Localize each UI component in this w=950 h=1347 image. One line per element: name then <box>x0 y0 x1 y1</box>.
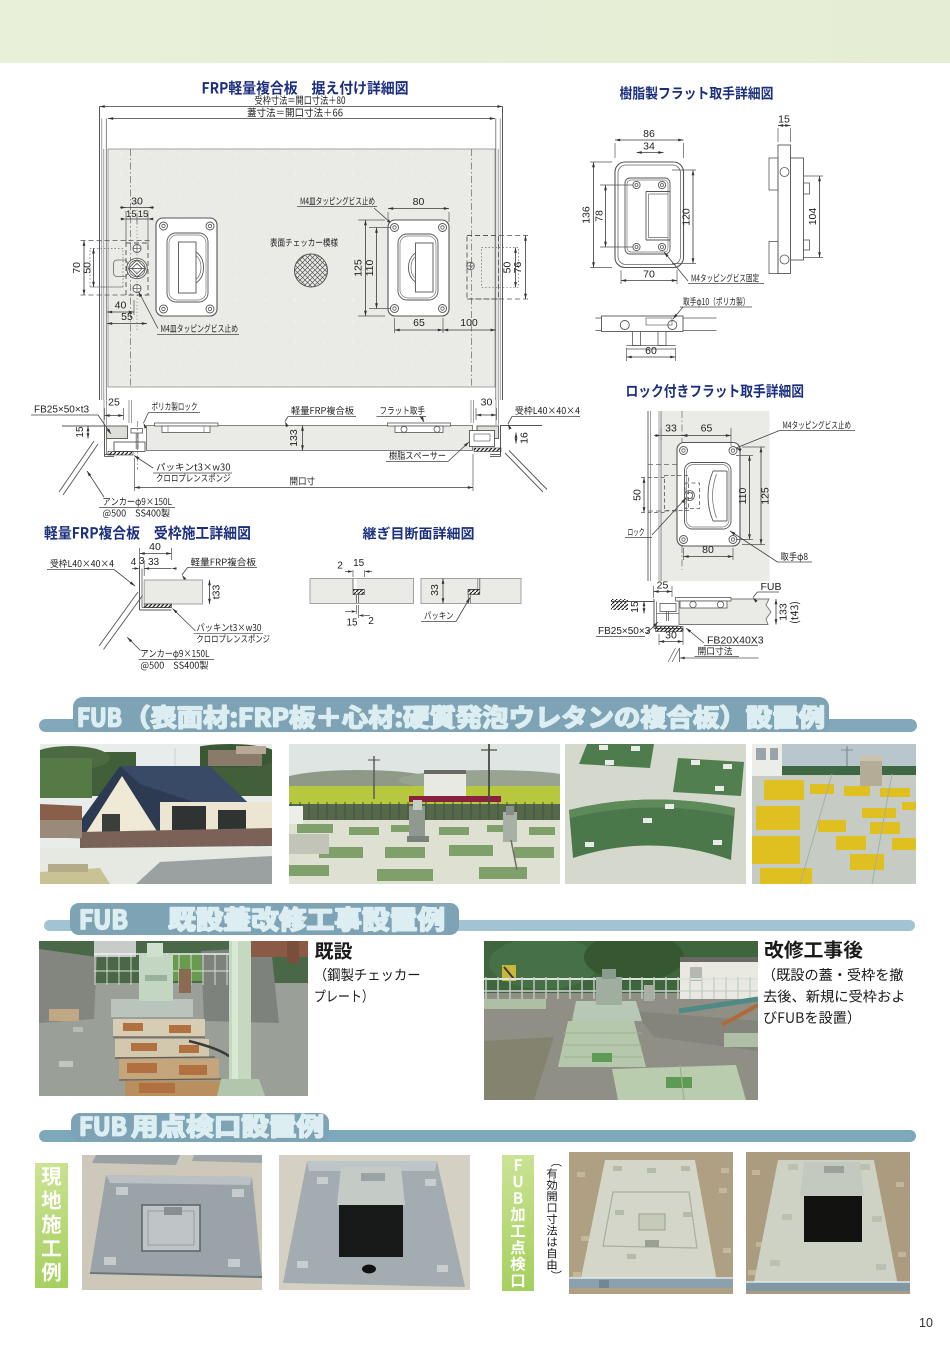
svg-text:33: 33 <box>148 557 160 568</box>
svg-text:16: 16 <box>519 432 531 444</box>
svg-text:25: 25 <box>657 580 669 592</box>
svg-text:104: 104 <box>807 208 819 226</box>
svg-text:125: 125 <box>760 487 772 505</box>
svg-text:15: 15 <box>346 618 358 629</box>
svg-text:110: 110 <box>737 487 749 504</box>
svg-text:15: 15 <box>353 558 365 569</box>
svg-text:FB20X40X3: FB20X40X3 <box>707 635 764 647</box>
svg-text:15: 15 <box>75 426 86 438</box>
svg-text:65: 65 <box>701 423 713 435</box>
svg-text:2: 2 <box>368 616 374 627</box>
svg-text:80: 80 <box>413 196 425 208</box>
svg-text:15: 15 <box>778 114 790 126</box>
svg-text:15: 15 <box>629 601 641 613</box>
svg-text:136: 136 <box>581 206 593 224</box>
svg-text:76: 76 <box>512 262 524 274</box>
svg-text:78: 78 <box>594 210 606 222</box>
svg-text:25: 25 <box>108 397 120 409</box>
svg-text:55: 55 <box>121 311 133 323</box>
svg-text:30: 30 <box>665 630 677 642</box>
svg-text:50: 50 <box>632 489 644 501</box>
svg-text:65: 65 <box>413 317 425 329</box>
svg-text:30: 30 <box>481 397 493 409</box>
svg-text:110: 110 <box>364 259 376 276</box>
svg-text:125: 125 <box>353 259 365 277</box>
svg-text:15: 15 <box>126 209 137 220</box>
svg-text:33: 33 <box>665 423 677 435</box>
svg-text:70: 70 <box>643 269 655 281</box>
svg-text:4: 4 <box>131 557 137 568</box>
svg-text:80: 80 <box>702 544 714 556</box>
svg-text:t33: t33 <box>211 585 223 600</box>
svg-text:50: 50 <box>82 262 94 274</box>
svg-text:60: 60 <box>645 345 657 357</box>
svg-text:86: 86 <box>643 128 655 140</box>
svg-text:2: 2 <box>337 561 343 572</box>
svg-text:40: 40 <box>149 541 161 553</box>
svg-text:15: 15 <box>138 209 149 220</box>
svg-text:34: 34 <box>643 141 655 153</box>
svg-text:120: 120 <box>681 208 693 226</box>
svg-text:133: 133 <box>288 429 300 447</box>
svg-text:FB25×50×t3: FB25×50×t3 <box>34 405 89 416</box>
svg-text:FUB: FUB <box>761 581 782 593</box>
svg-text:100: 100 <box>460 317 478 329</box>
svg-text:30: 30 <box>131 196 143 208</box>
svg-text:FB25×50×3: FB25×50×3 <box>598 626 651 637</box>
svg-text:33: 33 <box>429 584 441 596</box>
svg-text:40: 40 <box>115 300 127 312</box>
svg-text:133: 133 <box>778 603 790 621</box>
